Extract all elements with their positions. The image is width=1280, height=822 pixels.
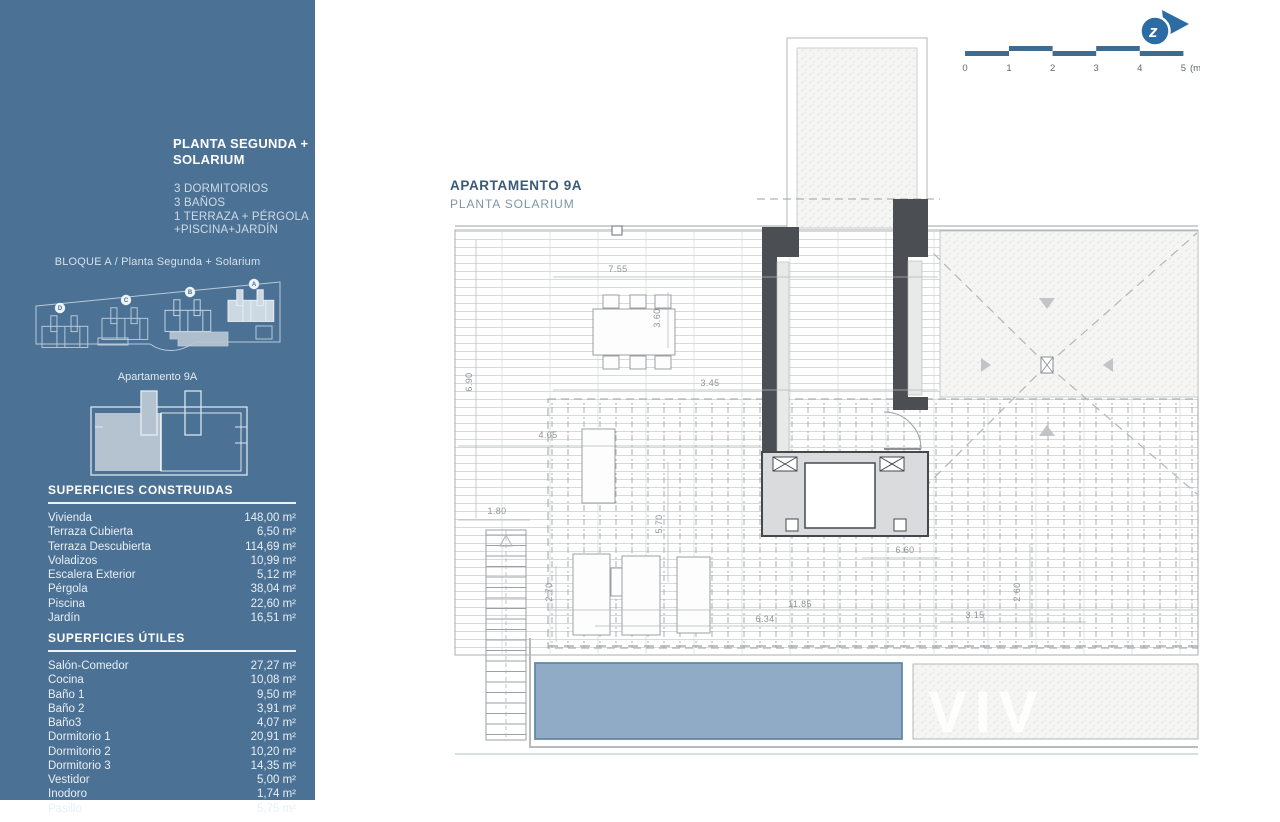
row-label: Salón-Comedor [48,659,129,673]
row-value: 10,08 m² [251,673,296,687]
scale-tick: 0 [962,63,967,74]
row-label: Pérgola [48,582,88,596]
sun-lounger [677,557,710,633]
sidebar-title-line1: PLANTA SEGUNDA + [173,136,313,152]
row-value: 38,04 m² [251,582,296,596]
badge-c: C [124,298,129,304]
badge-b: B [188,290,193,296]
apartment-label: Apartamento 9A [0,371,315,383]
constructed-heading: SUPERFICIES CONSTRUIDAS [48,483,296,504]
sun-lounger [582,429,615,503]
feature-line: 3 BAÑOS [174,197,309,211]
table-row: Voladizos 10,99 m² [48,554,296,568]
side-table [611,568,622,596]
unit-diagram [83,387,253,482]
row-label: Baño3 [48,716,81,730]
row-label: Pasillo [48,802,82,816]
row-label: Voladizos [48,554,97,568]
row-label: Vestidor [48,773,90,787]
scale-tick: 5 [1181,63,1186,74]
row-label: Baño 2 [48,702,84,716]
table-row: Vestidor 5,00 m² [48,773,296,787]
table-row: Salón-Comedor 27,27 m² [48,659,296,673]
row-label: Jardín [48,611,80,625]
surface-table-constructed: Vivienda 148,00 m² Terraza Cubierta 6,50… [48,511,296,625]
row-value: 20,91 m² [251,730,296,744]
table-row: Dormitorio 1 20,91 m² [48,730,296,744]
table-row: Inodoro 1,74 m² [48,787,296,801]
row-value: 27,27 m² [251,659,296,673]
table-row: Baño3 4,07 m² [48,716,296,730]
row-label: Dormitorio 2 [48,745,111,759]
stair-bulkhead [762,452,928,536]
dim-label: 3.45 [700,378,719,388]
useful-heading: SUPERFICIES ÚTILES [48,631,296,652]
badge-a: A [252,282,257,288]
table-row: Terraza Cubierta 6,50 m² [48,525,296,539]
sidebar-title: PLANTA SEGUNDA + SOLARIUM [173,136,313,168]
badge-d: D [58,306,63,312]
row-value: 3,91 m² [257,702,296,716]
table-row: Baño 2 3,91 m² [48,702,296,716]
row-value: 10,20 m² [251,745,296,759]
dim-label: 3.60 [652,308,662,327]
sun-lounger [622,556,660,635]
table-row: Jardín 16,51 m² [48,611,296,625]
row-label: Terraza Cubierta [48,525,133,539]
row-value: 1,74 m² [257,787,296,801]
pool [535,663,902,739]
feature-line: 3 DORMITORIOS [174,183,309,197]
row-label: Vivienda [48,511,92,525]
watermark: VIV [928,680,1046,745]
surface-tables: SUPERFICIES CONSTRUIDAS Vivienda 148,00 … [48,483,296,822]
table-row: Piscina 22,60 m² [48,597,296,611]
row-value: 6,50 m² [257,525,296,539]
row-label: Piscina [48,597,85,611]
skylight [805,463,875,528]
row-label: Terraza Descubierta [48,540,151,554]
table-row: Terraza Descubierta 114,69 m² [48,540,296,554]
dim-label: 11.85 [788,599,812,609]
dim-label: 5.70 [654,514,664,533]
table-row: Escalera Exterior 5,12 m² [48,568,296,582]
table-row: Pérgola 38,04 m² [48,582,296,596]
sidebar-panel: PLANTA SEGUNDA + SOLARIUM 3 DORMITORIOS3… [0,0,315,800]
table-row: Dormitorio 3 14,35 m² [48,759,296,773]
site-plan-map: D C B A [30,276,285,364]
exterior-stair [486,530,526,740]
row-value: 4,07 m² [257,716,296,730]
dim-label: 1.80 [487,506,506,516]
scale-unit: (m) [1190,63,1200,74]
feature-line: +PISCINA+JARDÍN [174,224,309,238]
north-arrow-icon: z [1128,2,1200,60]
table-row: Baño 1 9,50 m² [48,688,296,702]
row-value: 5,00 m² [257,773,296,787]
dim-label: 7.55 [608,264,627,274]
row-value: 148,00 m² [244,511,296,525]
sun-lounger [573,554,610,635]
table-row: Vivienda 148,00 m² [48,511,296,525]
logo-letter: z [1148,22,1158,41]
dim-label: 4.05 [538,430,557,440]
dim-label: 3.15 [965,610,984,620]
row-value: 10,99 m² [251,554,296,568]
dim-label: 6.90 [464,372,474,391]
feature-list: 3 DORMITORIOS3 BAÑOS1 TERRAZA + PÉRGOLA+… [174,183,309,238]
dim-label: 2.60 [1012,582,1022,601]
table-row: Pasillo 5,75 m² [48,802,296,816]
dining-table [593,309,675,355]
row-value: 5,75 m² [257,802,296,816]
dim-label: 6.34 [755,614,774,624]
row-value: 114,69 m² [245,540,296,554]
row-label: Inodoro [48,787,87,801]
row-value: 5,12 m² [257,568,296,582]
dim-label: 6.60 [895,545,914,555]
scale-tick: 1 [1006,63,1011,74]
scale-tick: 4 [1137,63,1142,74]
table-row: Cocina 10,08 m² [48,673,296,687]
row-label: Baño 1 [48,688,84,702]
feature-line: 1 TERRAZA + PÉRGOLA [174,211,309,225]
row-value: 22,60 m² [251,597,296,611]
dim-label: 2.70 [544,582,554,601]
scale-tick: 3 [1094,63,1099,74]
floor-plan-drawing: VIV 7.55 3.60 6.90 3.45 4.05 1.80 5.70 2… [450,20,1205,760]
row-label: Cocina [48,673,84,687]
deck-post [612,226,622,235]
scale-tick: 2 [1050,63,1055,74]
block-label: BLOQUE A / Planta Segunda + Solarium [0,256,315,268]
surface-table-useful: Salón-Comedor 27,27 m² Cocina 10,08 m² B… [48,659,296,816]
row-value: 9,50 m² [257,688,296,702]
table-row: Dormitorio 2 10,20 m² [48,745,296,759]
row-value: 16,51 m² [251,611,296,625]
row-value: 14,35 m² [251,759,296,773]
row-label: Dormitorio 3 [48,759,111,773]
row-label: Escalera Exterior [48,568,136,582]
row-label: Dormitorio 1 [48,730,111,744]
sidebar-title-line2: SOLARIUM [173,152,313,168]
